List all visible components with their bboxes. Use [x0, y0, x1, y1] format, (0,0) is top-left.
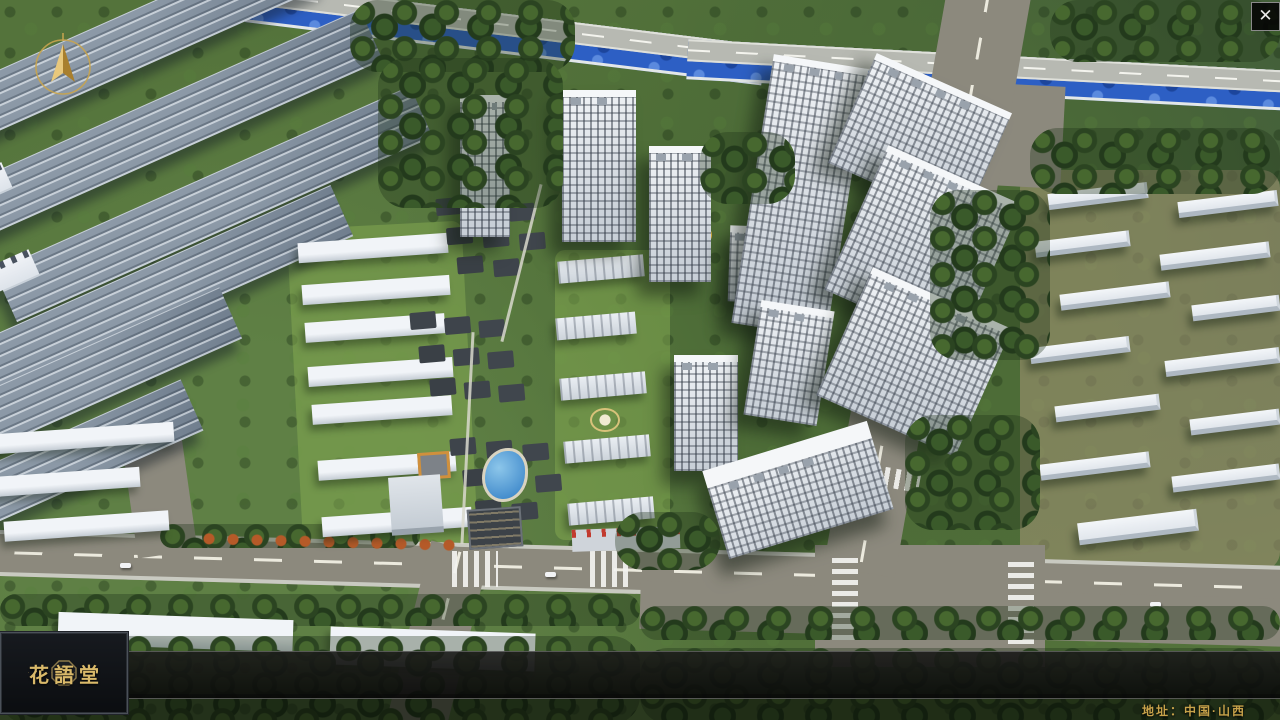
project-logo-panel[interactable]: 花語堂 · · · · · · · · · · — [0, 632, 128, 714]
tree-grove — [1050, 0, 1280, 62]
car — [545, 572, 556, 577]
tree-grove — [905, 415, 1040, 530]
tree-grove — [378, 58, 563, 208]
garden-pavilion — [590, 408, 620, 432]
amenity-building — [388, 474, 444, 535]
ground-patch — [1020, 170, 1280, 570]
compass-icon — [30, 32, 96, 98]
car — [120, 563, 131, 568]
presentation-window: ✕ o1 品牌 · 介绍 BRAND SUPPORT o2 区位 · 价值 LO… — [0, 0, 1280, 720]
tree-grove — [700, 132, 795, 204]
crosswalk — [452, 551, 498, 587]
address-text: 地址：中国·山西 — [1142, 702, 1246, 719]
lawn-patch — [287, 221, 479, 555]
tree-grove — [930, 190, 1050, 360]
close-button[interactable]: ✕ — [1251, 2, 1280, 31]
project-subtitle: · · · · · · · · · · — [28, 670, 101, 676]
tree-grove — [1030, 128, 1280, 194]
tree-grove — [615, 512, 720, 570]
tower — [562, 90, 636, 242]
tower — [674, 355, 738, 471]
street-trees — [640, 606, 1280, 640]
bottom-menu-bar: o1 品牌 · 介绍 BRAND SUPPORT o2 区位 · 价值 LOCA… — [0, 651, 1280, 699]
site-plan-render — [0, 0, 1280, 720]
clubhouse — [467, 506, 524, 550]
courtyard-houses — [449, 437, 476, 456]
courtyard-houses — [409, 311, 436, 330]
